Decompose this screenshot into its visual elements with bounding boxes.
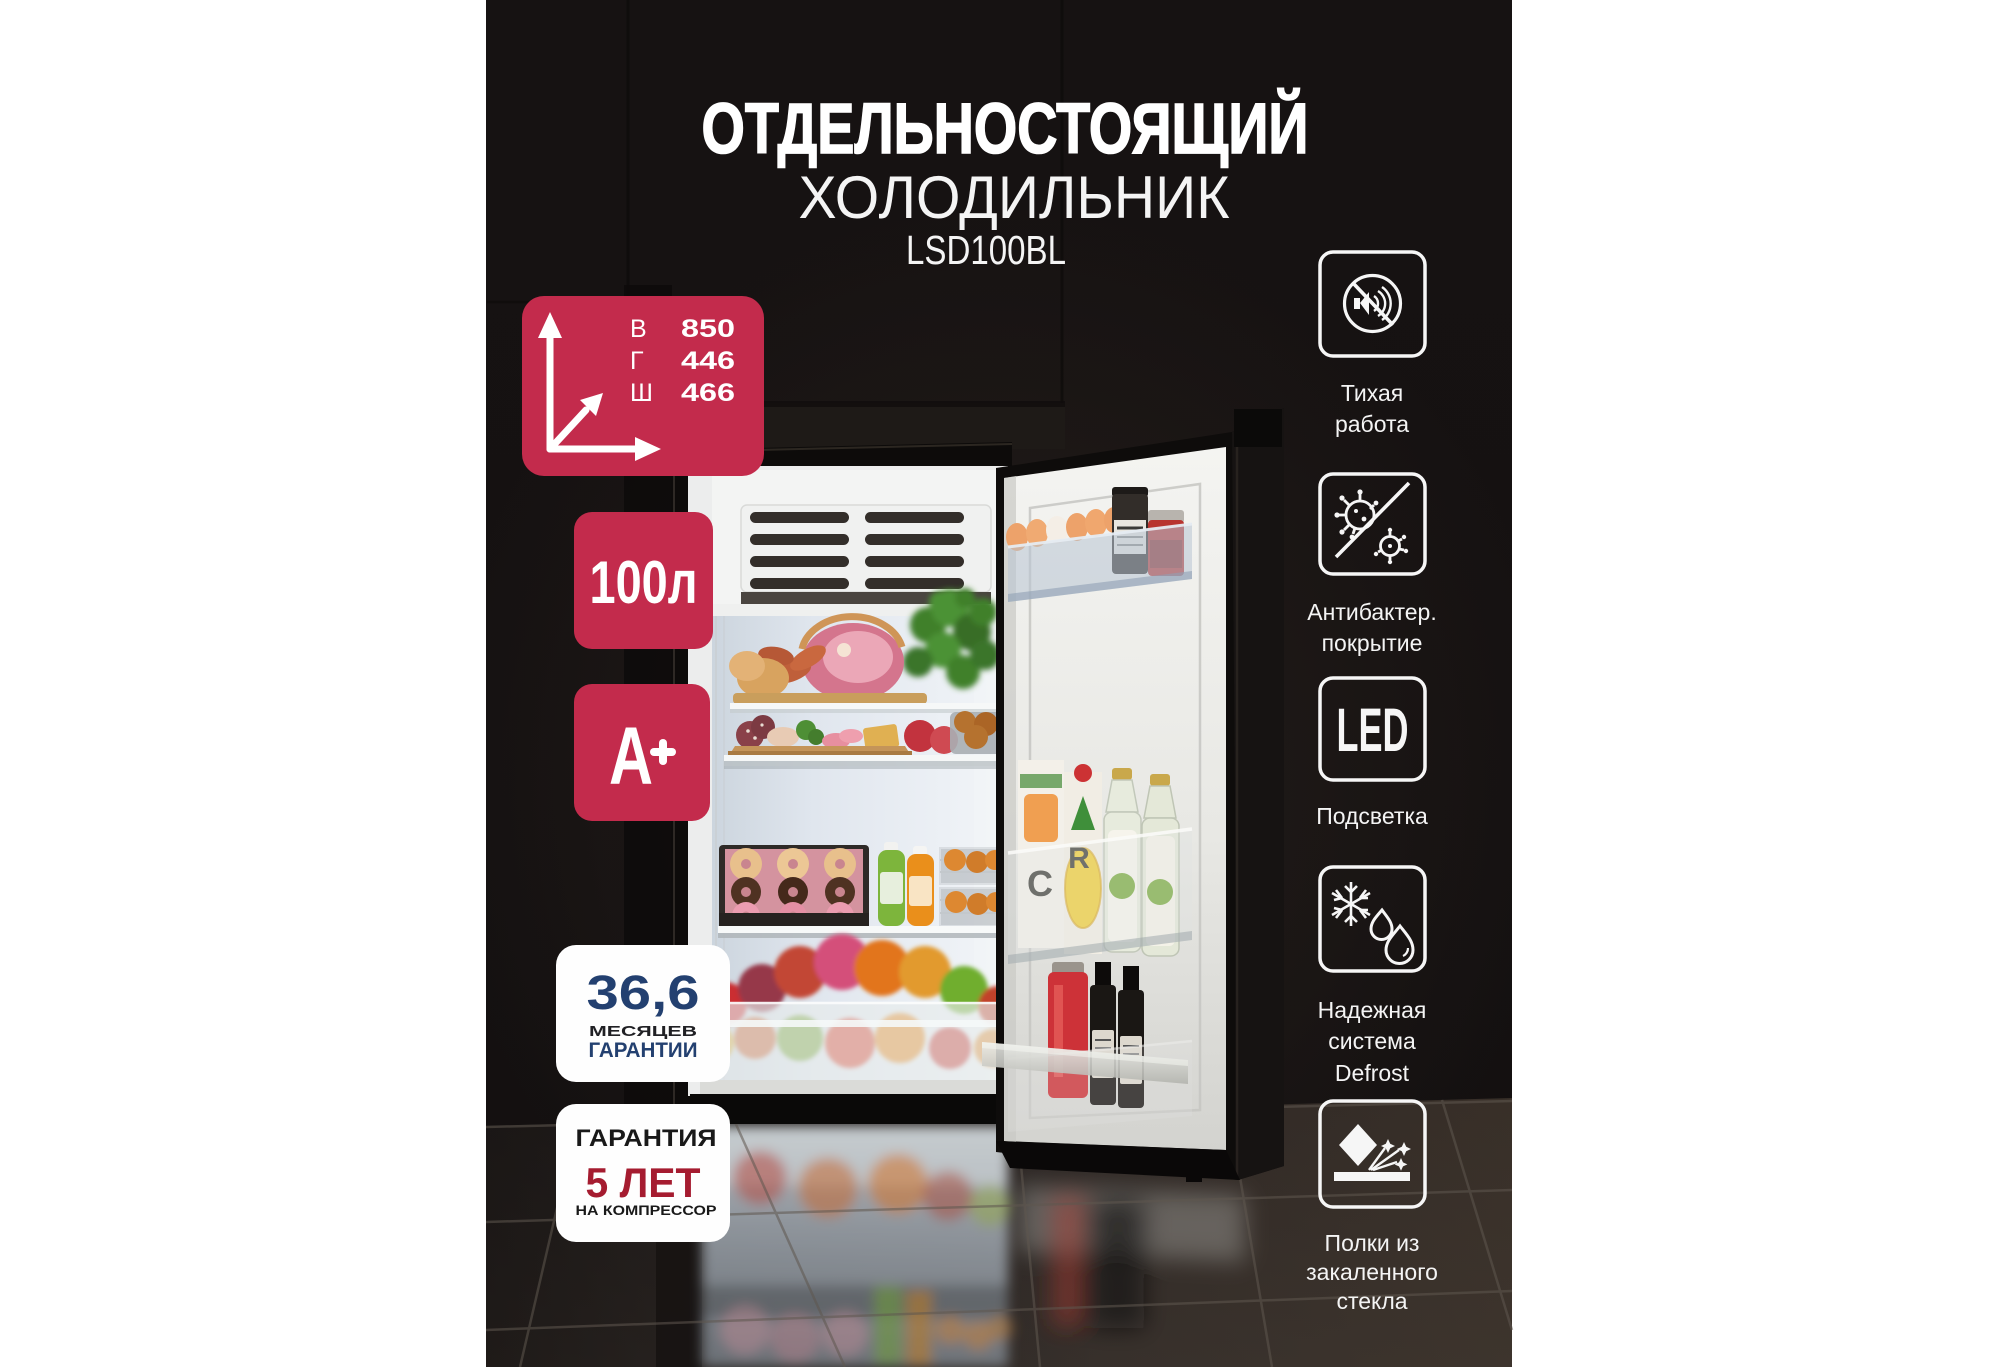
svg-text:В: В xyxy=(630,315,647,343)
svg-text:850: 850 xyxy=(681,315,735,343)
svg-text:ГАРАНТИЯ: ГАРАНТИЯ xyxy=(576,1125,717,1152)
svg-text:Антибактер.: Антибактер. xyxy=(1307,599,1436,625)
svg-text:Г: Г xyxy=(630,347,644,375)
svg-text:A: A xyxy=(609,711,653,802)
svg-text:НА КОМПРЕССОР: НА КОМПРЕССОР xyxy=(576,1203,717,1218)
svg-text:система: система xyxy=(1328,1028,1416,1054)
svg-text:5 ЛЕТ: 5 ЛЕТ xyxy=(586,1159,701,1206)
svg-text:446: 446 xyxy=(681,347,735,375)
svg-text:466: 466 xyxy=(681,379,735,407)
svg-text:стекла: стекла xyxy=(1336,1288,1407,1314)
svg-text:36,6: 36,6 xyxy=(587,967,700,1020)
svg-text:Полки из: Полки из xyxy=(1325,1230,1420,1256)
svg-text:Подсветка: Подсветка xyxy=(1316,803,1428,829)
svg-text:LED: LED xyxy=(1337,696,1409,764)
svg-text:Ш: Ш xyxy=(630,379,653,407)
svg-text:работа: работа xyxy=(1335,411,1409,437)
svg-text:ОТДЕЛЬНОСТОЯЩИЙ: ОТДЕЛЬНОСТОЯЩИЙ xyxy=(702,89,1309,169)
svg-text:МЕСЯЦЕВ: МЕСЯЦЕВ xyxy=(589,1023,697,1040)
svg-text:ХОЛОДИЛЬНИК: ХОЛОДИЛЬНИК xyxy=(799,164,1230,231)
svg-text:LSD100BL: LSD100BL xyxy=(906,227,1066,273)
svg-text:Тихая: Тихая xyxy=(1341,380,1403,406)
svg-text:ГАРАНТИИ: ГАРАНТИИ xyxy=(589,1039,698,1062)
svg-text:покрытие: покрытие xyxy=(1322,630,1423,656)
svg-text:Надежная: Надежная xyxy=(1318,997,1427,1023)
svg-text:закаленного: закаленного xyxy=(1306,1259,1438,1285)
svg-text:Defrost: Defrost xyxy=(1335,1060,1410,1086)
svg-text:100л: 100л xyxy=(590,549,698,616)
